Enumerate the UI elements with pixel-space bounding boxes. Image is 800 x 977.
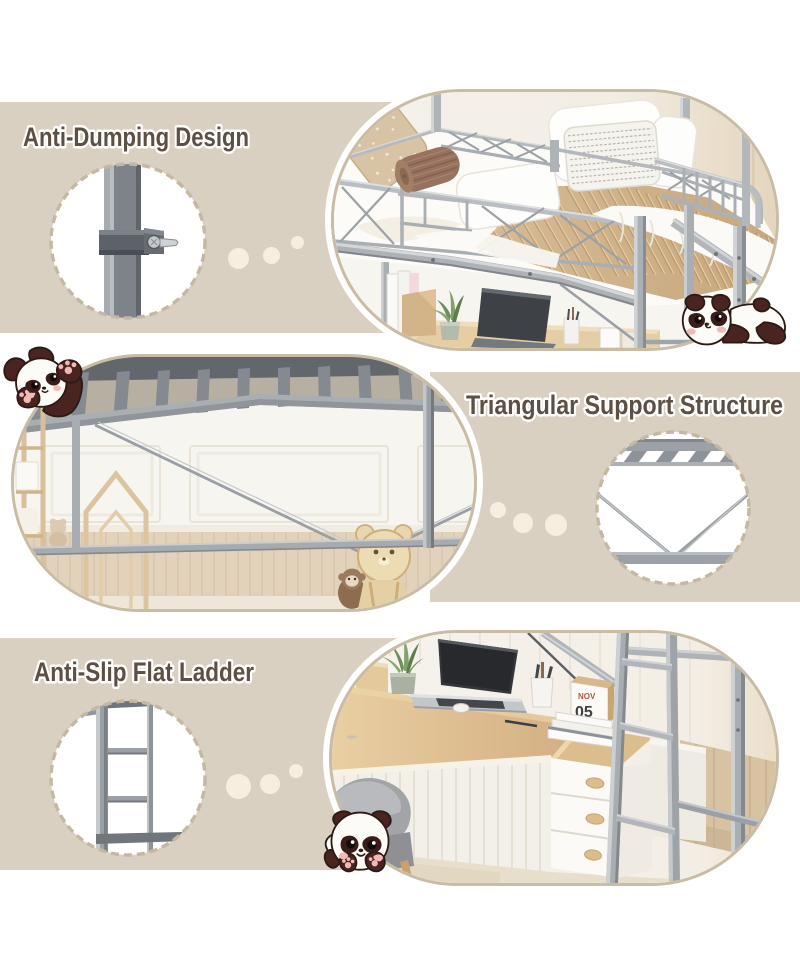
svg-text:Anti-Slip Flat Ladder: Anti-Slip Flat Ladder xyxy=(34,657,254,687)
svg-text:Anti-Dumping Design: Anti-Dumping Design xyxy=(23,122,249,152)
svg-text:Triangular Support Structure: Triangular Support Structure xyxy=(466,390,783,420)
svg-text:NOV: NOV xyxy=(578,692,596,701)
